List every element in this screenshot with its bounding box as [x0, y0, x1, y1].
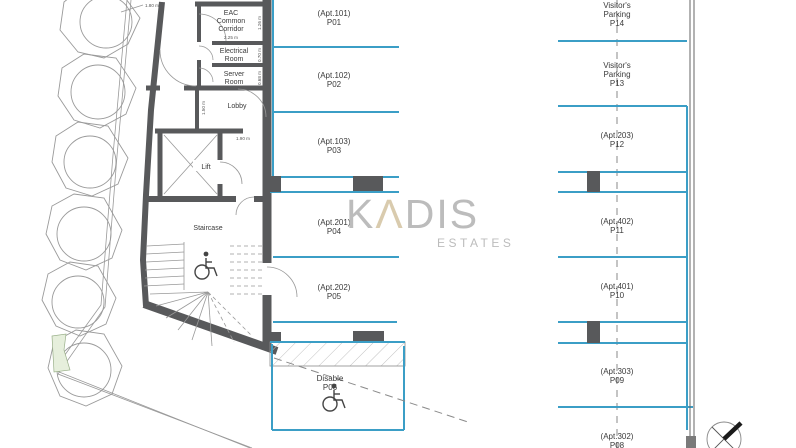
room-labels: EAC Common Corridor 2.25 m 1.26 m Electr…	[201, 10, 262, 141]
lift-shaft: Lift	[164, 135, 219, 194]
north-compass-icon	[707, 422, 741, 448]
corridor-width-dim: 1.90 m	[236, 136, 250, 141]
server-height-dim: 0.68 m	[257, 71, 262, 85]
server-label-2: Room	[225, 79, 244, 86]
stall-p11-apt: (Apt.402)	[601, 217, 634, 226]
watermark-brand: KΛDIS	[346, 191, 479, 237]
eac-label-2: Common	[217, 18, 246, 25]
lift-label: Lift	[201, 164, 210, 171]
stall-p08-code: P08	[610, 441, 625, 448]
electrical-label-1: Electrical	[220, 48, 249, 55]
stall-p05-code: P05	[327, 292, 342, 301]
stall-p03-apt: (Apt.103)	[318, 137, 351, 146]
stall-p02-apt: (Apt.102)	[318, 71, 351, 80]
stall-p12-apt: (Apt.203)	[601, 131, 634, 140]
stall-p11-code: P11	[610, 226, 624, 235]
staircase-label: Staircase	[193, 225, 222, 232]
tree-strip-dimension: 1.80 m	[145, 3, 159, 8]
stall-p06-apt: Disable	[317, 374, 344, 383]
eac-label-1: EAC	[224, 10, 238, 17]
floor-plan-drawing: 1.80 m Lift	[0, 0, 796, 448]
stall-p01-apt: (Apt.101)	[318, 9, 351, 18]
stall-p13-code: P13	[610, 79, 625, 88]
electrical-label-2: Room	[225, 56, 244, 63]
floor-plan-canvas: 1.80 m Lift	[0, 0, 796, 448]
stall-p14-line2: Parking	[603, 10, 630, 19]
stall-p12-code: P12	[610, 140, 625, 149]
wheelchair-icon	[195, 252, 217, 279]
stall-p09-apt: (Apt.303)	[601, 367, 634, 376]
stall-p13-line1: Visitor's	[603, 61, 631, 70]
stall-p02-code: P02	[327, 80, 342, 89]
eac-label-3: Corridor	[218, 26, 244, 33]
lobby-label: Lobby	[227, 103, 247, 110]
landscape-area	[52, 334, 70, 372]
server-label-1: Server	[224, 71, 245, 78]
stall-p09-code: P09	[610, 376, 625, 385]
stall-p13-line2: Parking	[603, 70, 630, 79]
kadis-watermark: KΛDIS ESTATES	[346, 191, 514, 250]
eac-width-dim: 2.25 m	[224, 35, 238, 40]
stall-p04-code: P04	[327, 227, 342, 236]
stall-p14-line1: Visitor's	[603, 1, 631, 10]
electrical-height-dim: 0.70 m	[257, 48, 262, 62]
stall-p10-code: P10	[610, 291, 625, 300]
ramp-hatch-strip	[270, 342, 405, 366]
parking-column-right: Visitor's Parking P14 Visitor's Parking …	[558, 0, 696, 448]
stall-p01-code: P01	[327, 18, 342, 27]
stall-p08-apt: (Apt.302)	[601, 432, 634, 441]
lobby-height-dim: 1.50 m	[201, 101, 206, 115]
stall-p14-code: P14	[610, 19, 625, 28]
stall-p03-code: P03	[327, 146, 342, 155]
stall-p10-apt: (Apt.401)	[601, 282, 634, 291]
eac-height-dim: 1.26 m	[257, 16, 262, 30]
stall-p05-apt: (Apt.202)	[318, 283, 351, 292]
watermark-accent-a: Λ	[375, 191, 404, 237]
watermark-tagline: ESTATES	[437, 236, 514, 250]
